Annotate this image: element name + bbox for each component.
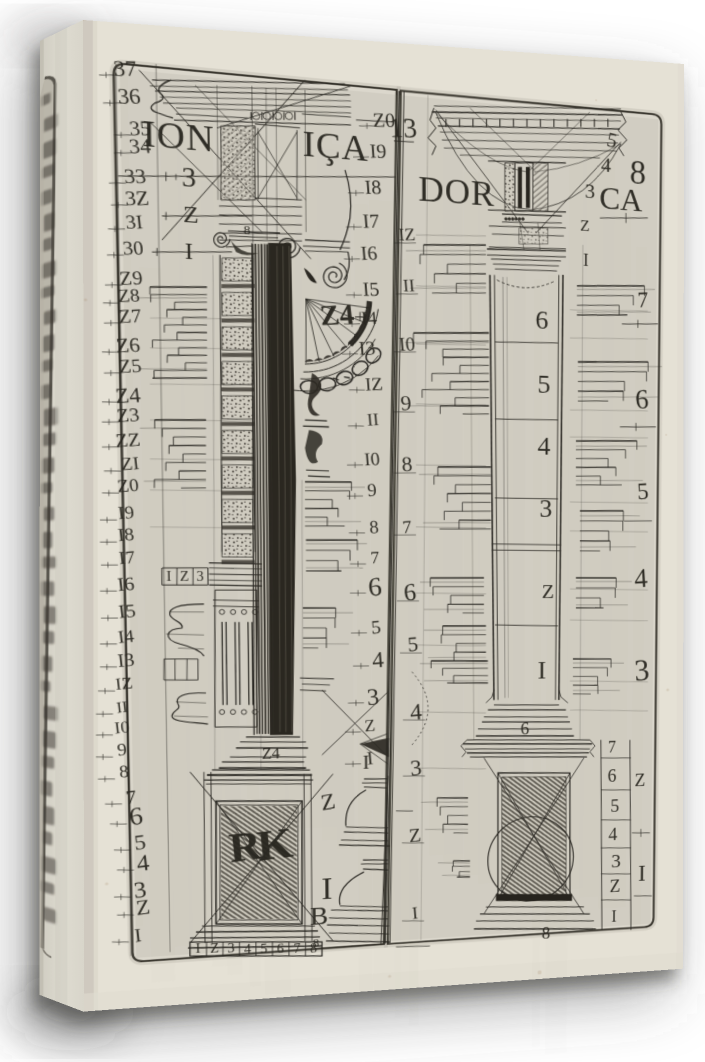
svg-text:4: 4 bbox=[537, 431, 550, 460]
svg-text:8: 8 bbox=[630, 153, 647, 192]
svg-text:I: I bbox=[166, 569, 171, 584]
svg-text:6: 6 bbox=[607, 766, 616, 787]
svg-text:30: 30 bbox=[121, 236, 144, 259]
svg-text:I: I bbox=[185, 237, 194, 264]
svg-text:6: 6 bbox=[403, 579, 418, 606]
svg-text:8: 8 bbox=[313, 936, 320, 950]
svg-text:4: 4 bbox=[601, 154, 611, 177]
svg-text:Z4: Z4 bbox=[262, 744, 280, 762]
svg-text:7: 7 bbox=[402, 516, 413, 537]
svg-text:ZZ: ZZ bbox=[114, 428, 141, 451]
svg-text:3: 3 bbox=[366, 684, 380, 711]
svg-text:4: 4 bbox=[633, 564, 648, 594]
svg-text:9: 9 bbox=[366, 479, 377, 500]
svg-text:36: 36 bbox=[116, 83, 142, 108]
svg-text:DOR: DOR bbox=[418, 169, 495, 214]
svg-text:B: B bbox=[310, 901, 329, 931]
svg-text:Z4: Z4 bbox=[318, 298, 356, 331]
svg-text:Z: Z bbox=[135, 896, 152, 920]
svg-text:3Z: 3Z bbox=[124, 186, 151, 210]
svg-text:IÇA: IÇA bbox=[303, 124, 369, 170]
svg-text:Z6: Z6 bbox=[115, 333, 142, 357]
svg-text:6: 6 bbox=[634, 385, 649, 416]
svg-text:I9: I9 bbox=[117, 502, 135, 523]
svg-text:6: 6 bbox=[367, 572, 383, 602]
svg-text:Z8: Z8 bbox=[117, 285, 141, 306]
svg-text:I0: I0 bbox=[363, 448, 380, 470]
svg-text:Z3: Z3 bbox=[115, 403, 140, 426]
svg-text:I7: I7 bbox=[118, 547, 136, 568]
svg-text:Z: Z bbox=[580, 217, 590, 236]
svg-text:I: I bbox=[196, 941, 201, 956]
svg-text:Z: Z bbox=[364, 716, 376, 736]
svg-text:5: 5 bbox=[370, 616, 381, 638]
svg-text:8: 8 bbox=[542, 923, 551, 943]
svg-text:7: 7 bbox=[293, 942, 300, 957]
svg-text:Z0: Z0 bbox=[116, 475, 140, 496]
svg-text:Z: Z bbox=[183, 201, 199, 229]
svg-text:13: 13 bbox=[388, 113, 418, 144]
svg-text:3: 3 bbox=[585, 180, 595, 203]
svg-text:I0: I0 bbox=[113, 718, 130, 738]
svg-text:4: 4 bbox=[244, 941, 252, 956]
svg-text:Z: Z bbox=[180, 569, 189, 584]
svg-text:6: 6 bbox=[277, 942, 284, 957]
svg-text:3I: 3I bbox=[124, 211, 144, 234]
svg-text:4: 4 bbox=[371, 647, 385, 673]
svg-text:3: 3 bbox=[539, 493, 552, 522]
svg-text:7: 7 bbox=[608, 739, 616, 757]
svg-text:Z: Z bbox=[210, 941, 219, 956]
svg-text:Z: Z bbox=[635, 770, 646, 791]
svg-text:Z7: Z7 bbox=[117, 304, 142, 327]
svg-text:II: II bbox=[366, 410, 379, 430]
svg-text:I4: I4 bbox=[360, 307, 378, 329]
svg-text:7: 7 bbox=[370, 548, 380, 568]
svg-text:I5: I5 bbox=[117, 600, 136, 623]
svg-text:I: I bbox=[583, 251, 589, 270]
svg-text:5: 5 bbox=[260, 942, 267, 957]
svg-text:I6: I6 bbox=[116, 573, 135, 596]
svg-text:Z: Z bbox=[610, 876, 621, 897]
svg-text:3: 3 bbox=[611, 851, 621, 872]
svg-text:Z: Z bbox=[542, 581, 554, 603]
svg-text:6: 6 bbox=[535, 305, 548, 335]
svg-text:I5: I5 bbox=[362, 278, 380, 301]
svg-text:I8: I8 bbox=[117, 524, 135, 545]
svg-text:3: 3 bbox=[182, 162, 197, 193]
svg-text:I9: I9 bbox=[369, 139, 387, 162]
svg-text:3: 3 bbox=[633, 654, 650, 689]
svg-text:6: 6 bbox=[521, 719, 530, 739]
svg-text:IZ: IZ bbox=[398, 225, 416, 245]
svg-text:3: 3 bbox=[196, 569, 204, 584]
svg-text:4: 4 bbox=[608, 824, 617, 845]
svg-text:5: 5 bbox=[636, 479, 649, 505]
svg-text:IZ: IZ bbox=[114, 674, 133, 694]
svg-text:3: 3 bbox=[409, 755, 422, 780]
svg-text:I: I bbox=[611, 908, 616, 926]
svg-text:4: 4 bbox=[409, 699, 423, 725]
svg-text:II: II bbox=[402, 276, 415, 296]
svg-text:3: 3 bbox=[227, 941, 235, 956]
svg-text:I3: I3 bbox=[358, 337, 376, 360]
svg-text:I: I bbox=[638, 861, 646, 886]
svg-text:5: 5 bbox=[610, 796, 619, 817]
svg-text:8: 8 bbox=[369, 516, 380, 537]
svg-text:5: 5 bbox=[537, 369, 550, 399]
svg-text:I7: I7 bbox=[362, 210, 380, 233]
svg-text:7: 7 bbox=[637, 288, 649, 313]
svg-text:I8: I8 bbox=[364, 176, 382, 199]
svg-text:IZ: IZ bbox=[364, 373, 383, 395]
svg-text:I6: I6 bbox=[360, 242, 378, 265]
svg-text:I: I bbox=[538, 656, 547, 684]
